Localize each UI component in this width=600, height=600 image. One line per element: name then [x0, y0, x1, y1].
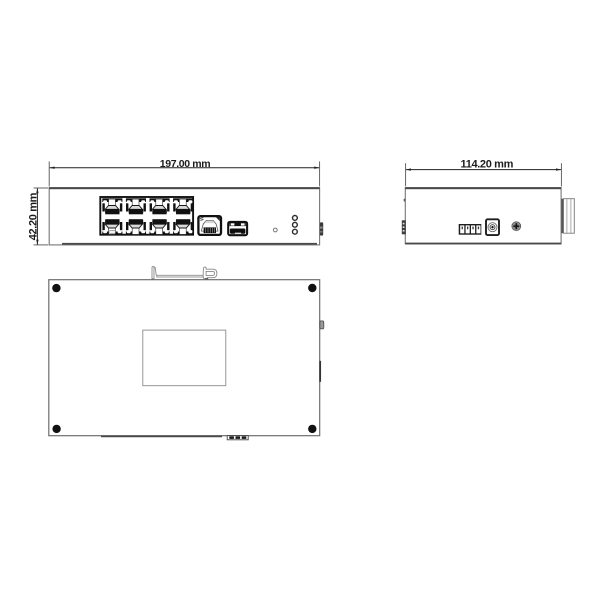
- svg-text:42.20 mm: 42.20 mm: [28, 192, 40, 240]
- svg-text:114.20 mm: 114.20 mm: [461, 159, 514, 171]
- svg-text:197.00 mm: 197.00 mm: [160, 158, 211, 170]
